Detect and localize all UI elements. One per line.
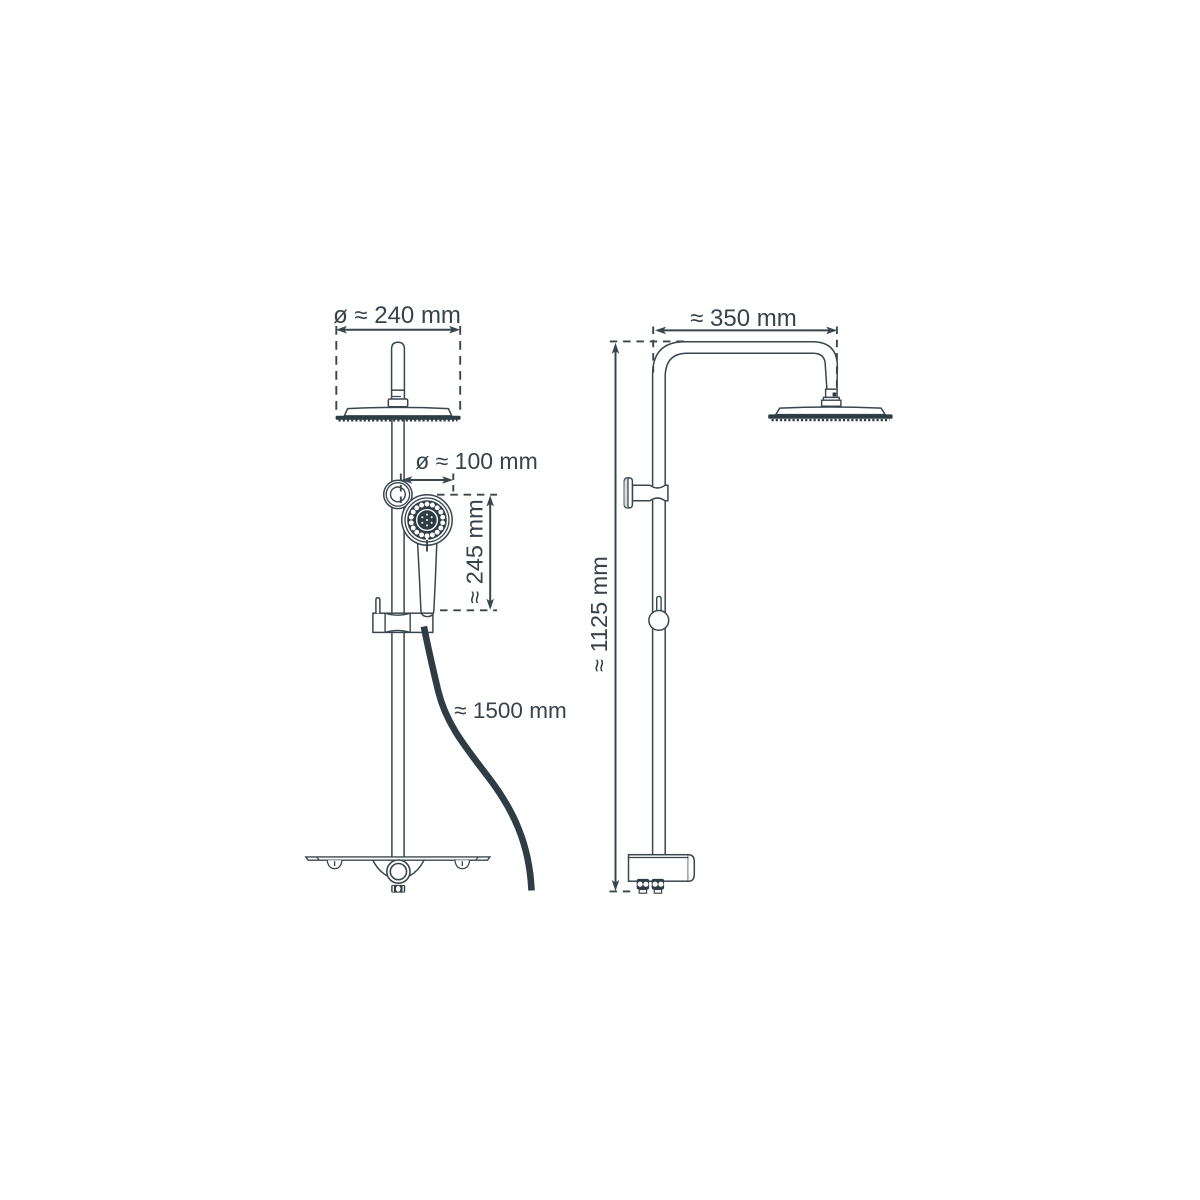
svg-text:≈ 1500 mm: ≈ 1500 mm [454,698,566,723]
svg-text:ø ≈ 240 mm: ø ≈ 240 mm [333,302,461,329]
svg-text:≈ 245 mm: ≈ 245 mm [462,499,488,603]
svg-text:≈ 1125 mm: ≈ 1125 mm [586,556,612,672]
svg-text:≈ 350 mm: ≈ 350 mm [690,305,797,332]
svg-text:ø ≈ 100 mm: ø ≈ 100 mm [415,448,538,474]
